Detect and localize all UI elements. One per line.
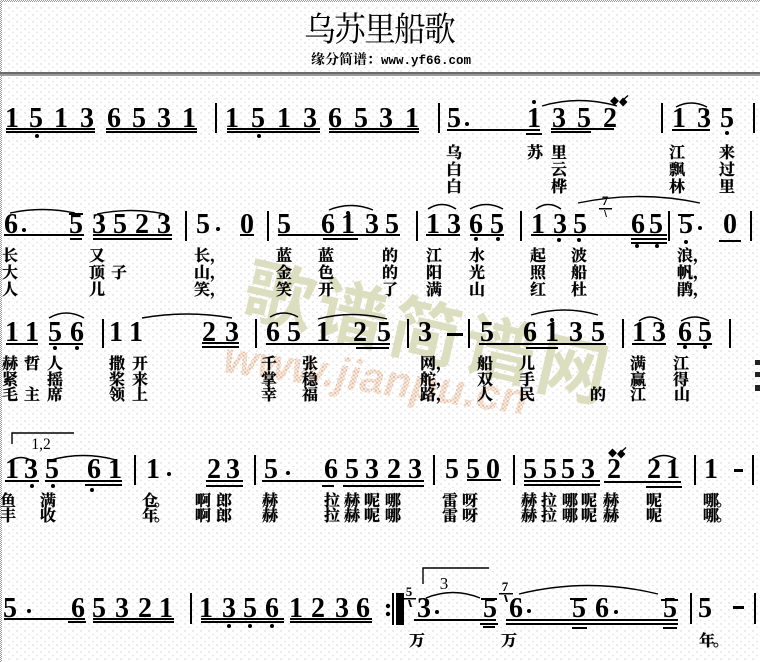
svg-text:1,2: 1,2	[31, 436, 50, 453]
svg-text:5: 5	[406, 584, 413, 599]
svg-text:1: 1	[146, 454, 160, 485]
svg-text:5: 5	[679, 209, 693, 240]
svg-text:2: 2	[607, 454, 621, 485]
svg-text:www.yf66.com: www.yf66.com	[381, 54, 472, 68]
svg-text:7: 7	[602, 193, 609, 208]
svg-text:3: 3	[418, 317, 432, 348]
svg-text:0: 0	[723, 209, 737, 240]
svg-text:5: 5	[445, 454, 459, 485]
svg-text:7: 7	[502, 579, 509, 594]
svg-text:1: 1	[129, 317, 143, 348]
svg-text:1: 1	[704, 454, 718, 485]
svg-text:5: 5	[698, 593, 712, 624]
svg-text:1: 1	[666, 454, 680, 485]
svg-text:1: 1	[109, 317, 123, 348]
svg-text:3: 3	[440, 574, 449, 593]
svg-text:5: 5	[720, 103, 734, 134]
svg-text:5: 5	[196, 209, 210, 240]
